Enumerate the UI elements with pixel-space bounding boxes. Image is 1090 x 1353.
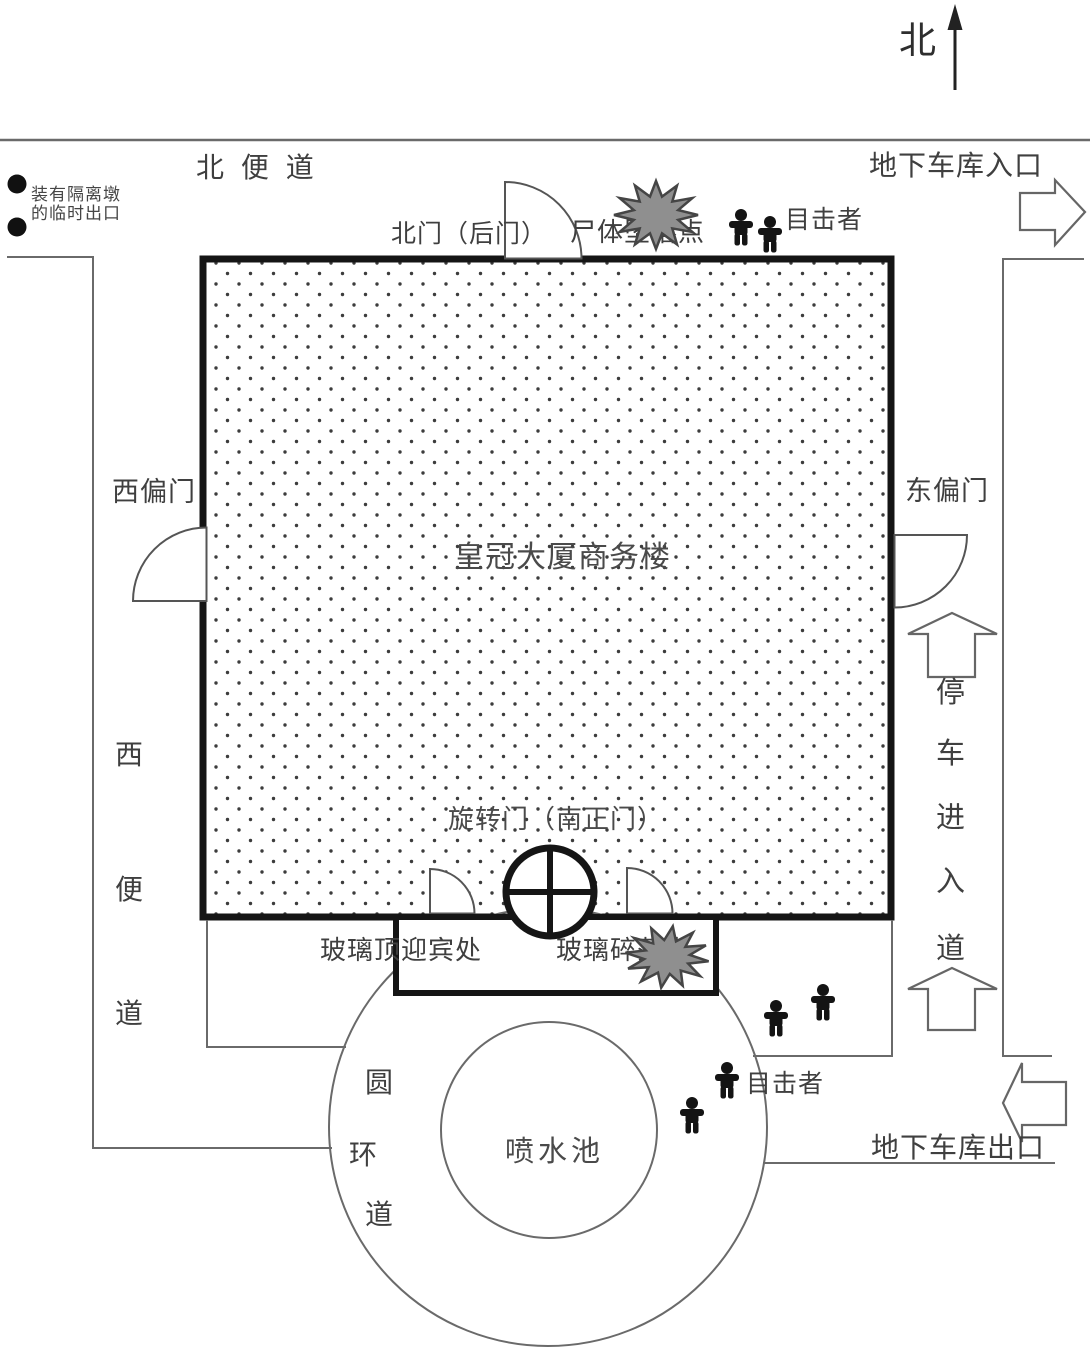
body-fall-burst-icon <box>614 181 698 249</box>
crime-scene-site-diagram: 北 北 便 道 装有隔离墩 的临时出口 地下车库入口 北门（后门） 尸体坠落点 … <box>0 0 1090 1353</box>
glass-fall-burst-icon <box>625 926 708 987</box>
impact-burst-overlay <box>0 0 1090 1353</box>
